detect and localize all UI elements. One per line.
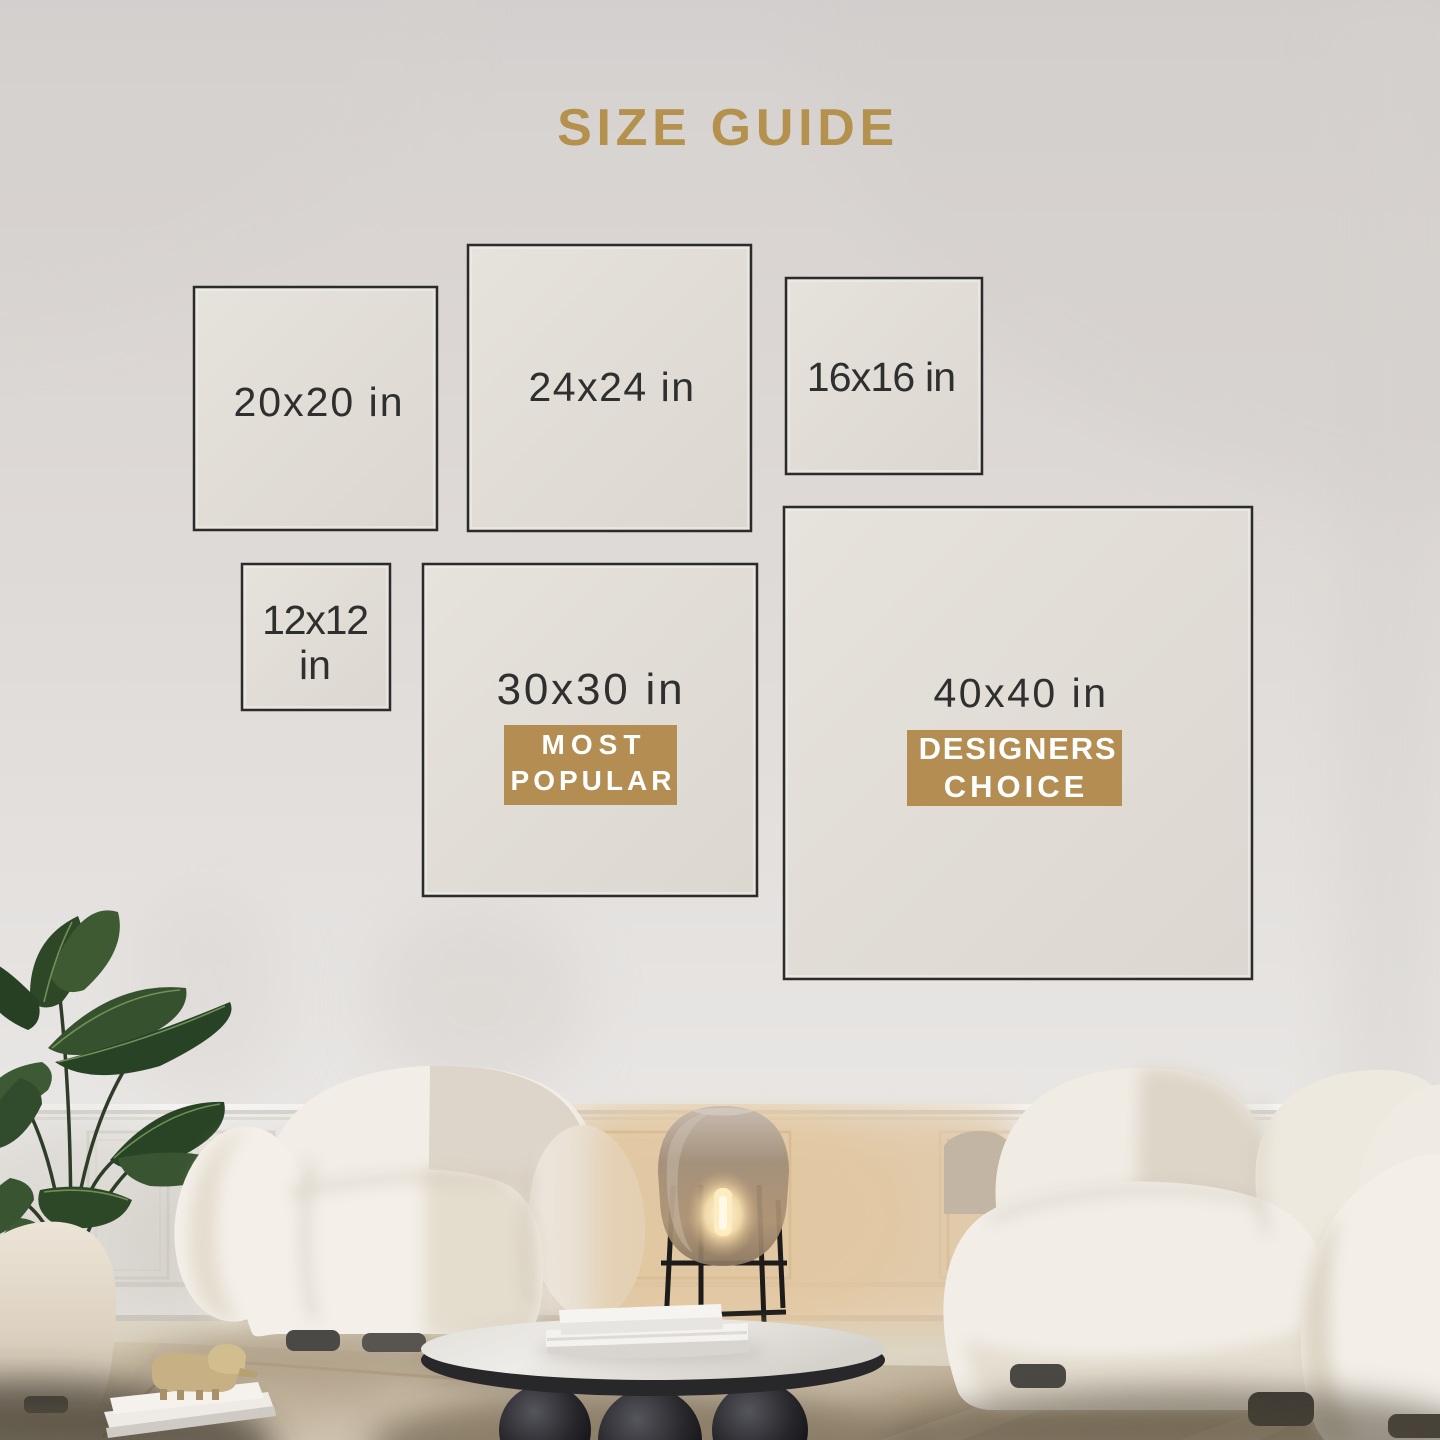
svg-text:DESIGNERS: DESIGNERS <box>919 731 1118 766</box>
svg-text:24x24 in: 24x24 in <box>528 364 695 410</box>
svg-text:CHOICE: CHOICE <box>944 769 1089 804</box>
svg-text:POPULAR: POPULAR <box>511 765 676 796</box>
svg-text:40x40 in: 40x40 in <box>933 670 1108 716</box>
svg-text:MOST: MOST <box>542 729 647 760</box>
svg-text:12x12: 12x12 <box>262 597 368 643</box>
svg-text:SIZE GUIDE: SIZE GUIDE <box>557 99 899 157</box>
svg-text:16x16 in: 16x16 in <box>807 354 956 400</box>
svg-text:20x20 in: 20x20 in <box>233 379 404 425</box>
svg-text:30x30 in: 30x30 in <box>497 665 686 714</box>
svg-text:in: in <box>299 642 331 688</box>
